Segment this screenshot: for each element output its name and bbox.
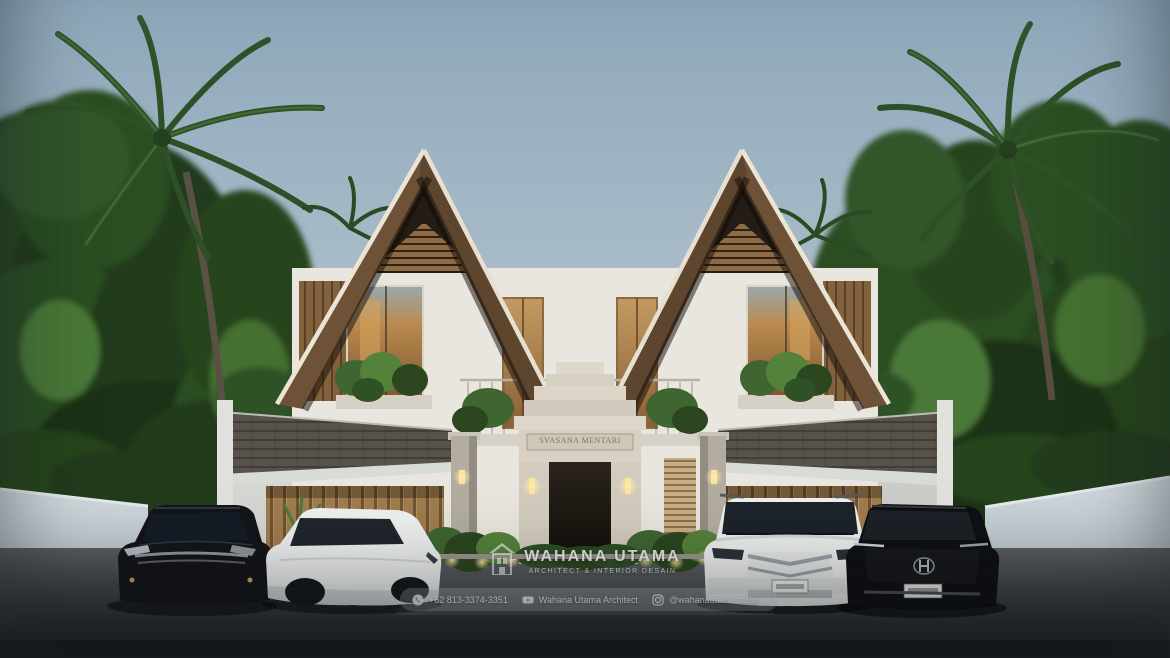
- contact-bar: +62 813-3374-3351 Wahana Utama Architect…: [400, 588, 778, 611]
- phone-number: +62 813-3374-3351: [429, 595, 508, 605]
- instagram-contact: @wahanautamastudio: [652, 594, 759, 606]
- scene-art: [0, 0, 1170, 658]
- whatsapp-contact: +62 813-3374-3351: [412, 594, 508, 606]
- youtube-channel: Wahana Utama Architect: [539, 595, 638, 605]
- architectural-render: SVASANA MENTARI WAHANA UTAMA ARCHITECT &…: [0, 0, 1170, 658]
- gate-name-sign: SVASANA MENTARI: [527, 434, 633, 448]
- whatsapp-icon: [412, 594, 424, 606]
- youtube-icon: [522, 594, 534, 606]
- instagram-handle: @wahanautamastudio: [669, 595, 759, 605]
- youtube-contact: Wahana Utama Architect: [522, 594, 638, 606]
- instagram-icon: [652, 594, 664, 606]
